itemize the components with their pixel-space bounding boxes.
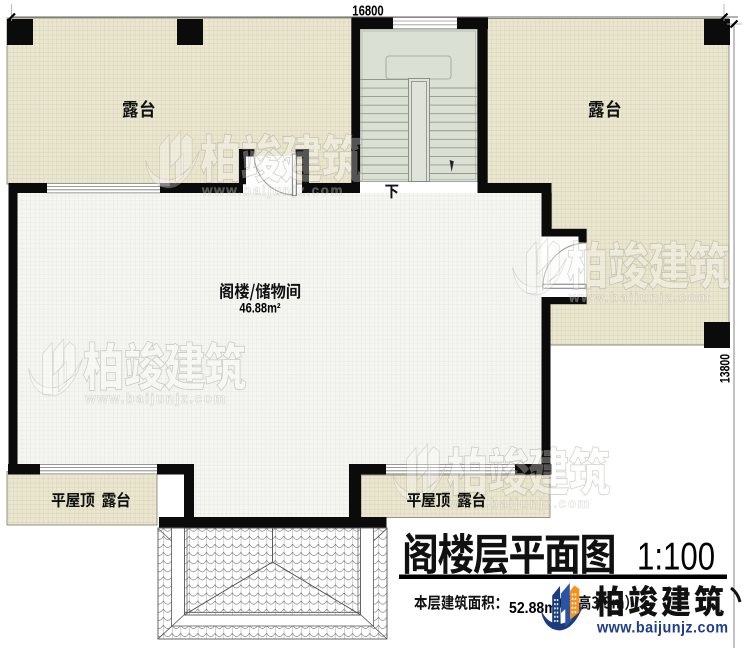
svg-text:1:100: 1:100 bbox=[637, 535, 715, 578]
svg-text:16800: 16800 bbox=[352, 2, 383, 19]
svg-text:46.88m²: 46.88m² bbox=[239, 300, 280, 315]
svg-text:www.baijunjz.com: www.baijunjz.com bbox=[596, 619, 728, 637]
svg-text:13800: 13800 bbox=[717, 354, 733, 383]
